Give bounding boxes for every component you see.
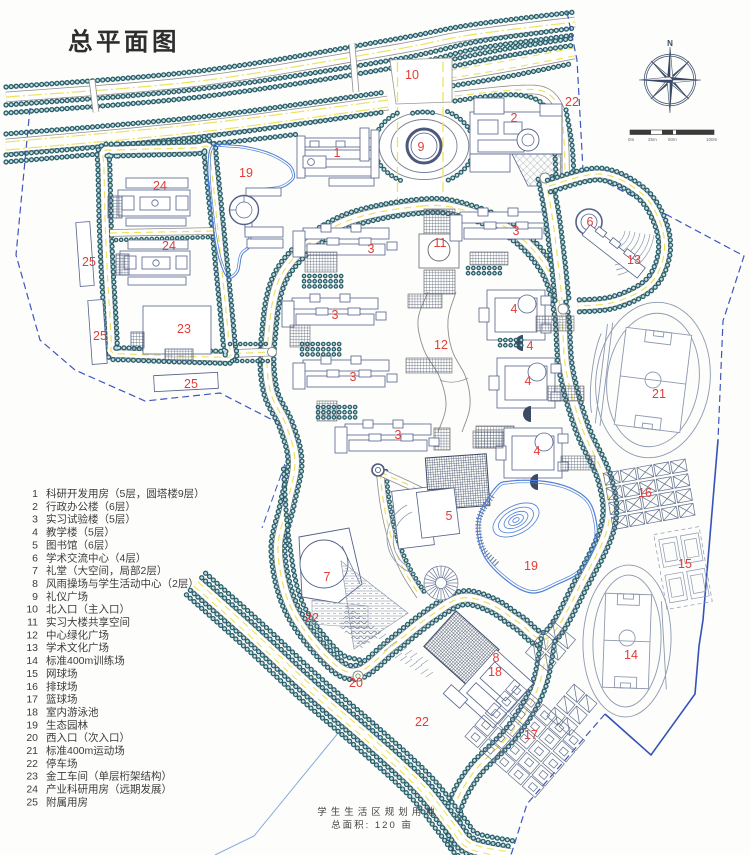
- svg-text:图书馆（6层）: 图书馆（6层）: [46, 538, 115, 551]
- svg-text:教学楼（5层）: 教学楼（5层）: [46, 526, 115, 539]
- svg-text:14: 14: [624, 648, 638, 662]
- svg-text:1: 1: [334, 146, 341, 160]
- svg-text:22: 22: [415, 715, 429, 729]
- svg-text:学生生活区规划用地: 学生生活区规划用地: [317, 806, 439, 818]
- svg-text:学术文化广场: 学术文化广场: [46, 641, 109, 654]
- svg-text:20: 20: [26, 732, 38, 744]
- svg-text:实习试验楼（5层）: 实习试验楼（5层）: [46, 513, 136, 526]
- svg-text:3: 3: [332, 308, 339, 322]
- svg-text:中心绿化广场: 中心绿化广场: [46, 628, 109, 641]
- svg-text:12: 12: [26, 629, 38, 641]
- svg-text:8: 8: [493, 651, 500, 665]
- svg-text:14: 14: [26, 655, 38, 667]
- svg-text:2: 2: [511, 111, 518, 125]
- svg-text:25m: 25m: [648, 137, 657, 142]
- svg-text:5: 5: [446, 509, 453, 523]
- svg-text:16: 16: [638, 486, 652, 500]
- svg-text:3: 3: [395, 428, 402, 442]
- svg-text:22: 22: [305, 611, 319, 625]
- svg-text:标准400m运动场: 标准400m运动场: [46, 744, 125, 757]
- svg-text:1: 1: [32, 488, 38, 500]
- svg-text:金工车间（单层桁架结构）: 金工车间（单层桁架结构）: [46, 770, 172, 783]
- svg-text:实习大楼共享空间: 实习大楼共享空间: [46, 616, 130, 629]
- svg-text:100m: 100m: [706, 137, 718, 142]
- svg-text:4: 4: [525, 374, 532, 388]
- svg-text:4: 4: [32, 527, 38, 539]
- svg-text:21: 21: [26, 745, 38, 757]
- svg-text:生态园林: 生态园林: [46, 718, 88, 731]
- svg-text:20: 20: [349, 676, 363, 690]
- svg-text:北入口（主入口）: 北入口（主入口）: [46, 604, 130, 616]
- svg-text:6: 6: [32, 552, 38, 564]
- svg-text:11: 11: [27, 617, 38, 629]
- svg-text:24: 24: [26, 784, 38, 796]
- svg-text:3: 3: [368, 242, 375, 256]
- svg-text:篮球场: 篮球场: [46, 693, 78, 706]
- svg-text:N: N: [667, 39, 673, 48]
- svg-text:25: 25: [184, 377, 198, 391]
- svg-text:4: 4: [534, 444, 541, 458]
- svg-text:10: 10: [26, 604, 38, 616]
- svg-text:0m: 0m: [628, 137, 635, 142]
- svg-text:行政办公楼（6层）: 行政办公楼（6层）: [46, 500, 136, 513]
- svg-text:25: 25: [26, 796, 38, 808]
- svg-text:风雨操场与学生活动中心（2层）: 风雨操场与学生活动中心（2层）: [46, 577, 199, 590]
- svg-text:西入口（次入口）: 西入口（次入口）: [46, 731, 130, 744]
- svg-text:礼堂（大空间，局部2层）: 礼堂（大空间，局部2层）: [46, 564, 167, 577]
- svg-text:礼仪广场: 礼仪广场: [46, 590, 88, 603]
- svg-text:15: 15: [26, 668, 38, 680]
- svg-text:22: 22: [26, 758, 38, 770]
- svg-text:3: 3: [350, 370, 357, 384]
- svg-text:2: 2: [32, 501, 38, 513]
- svg-text:13: 13: [627, 253, 641, 267]
- svg-text:排球场: 排球场: [46, 680, 78, 693]
- svg-text:24: 24: [153, 179, 167, 193]
- svg-text:16: 16: [26, 681, 38, 693]
- svg-text:9: 9: [418, 140, 425, 154]
- svg-text:21: 21: [652, 387, 666, 401]
- svg-text:总平面图: 总平面图: [68, 28, 180, 56]
- svg-text:3: 3: [513, 224, 520, 238]
- svg-text:23: 23: [177, 322, 191, 336]
- svg-text:19: 19: [26, 719, 38, 731]
- svg-text:15: 15: [678, 557, 692, 571]
- svg-text:4: 4: [511, 302, 518, 316]
- svg-text:25: 25: [93, 329, 107, 343]
- svg-text:11: 11: [434, 236, 447, 250]
- svg-text:标准400m训练场: 标准400m训练场: [46, 654, 125, 667]
- svg-text:3: 3: [32, 514, 38, 526]
- svg-text:7: 7: [324, 570, 331, 584]
- svg-text:17: 17: [524, 728, 538, 742]
- svg-text:18: 18: [26, 706, 38, 718]
- svg-text:17: 17: [26, 694, 38, 706]
- svg-text:4: 4: [527, 339, 534, 353]
- svg-text:22: 22: [565, 95, 579, 109]
- svg-text:25: 25: [82, 255, 96, 269]
- svg-text:总面积: 120 亩: 总面积: 120 亩: [331, 819, 413, 831]
- svg-text:19: 19: [524, 559, 538, 573]
- svg-text:7: 7: [32, 565, 38, 577]
- svg-text:50m: 50m: [668, 137, 677, 142]
- svg-text:5: 5: [32, 539, 38, 551]
- svg-text:24: 24: [162, 239, 176, 253]
- svg-text:13: 13: [26, 642, 38, 654]
- svg-text:18: 18: [488, 665, 502, 679]
- svg-text:学术交流中心（4层）: 学术交流中心（4层）: [46, 551, 146, 564]
- svg-text:8: 8: [32, 578, 38, 590]
- svg-text:停车场: 停车场: [46, 757, 78, 770]
- svg-text:附属用房: 附属用房: [46, 795, 88, 808]
- svg-text:12: 12: [434, 338, 448, 352]
- svg-text:9: 9: [32, 591, 38, 603]
- svg-text:产业科研用房（远期发展）: 产业科研用房（远期发展）: [46, 783, 172, 796]
- svg-text:网球场: 网球场: [46, 667, 78, 680]
- svg-text:19: 19: [239, 166, 253, 180]
- svg-text:科研开发用房（5层，圆塔楼9层）: 科研开发用房（5层，圆塔楼9层）: [46, 487, 205, 500]
- svg-text:室内游泳池: 室内游泳池: [46, 705, 99, 718]
- svg-text:23: 23: [26, 771, 38, 783]
- svg-text:10: 10: [405, 68, 419, 82]
